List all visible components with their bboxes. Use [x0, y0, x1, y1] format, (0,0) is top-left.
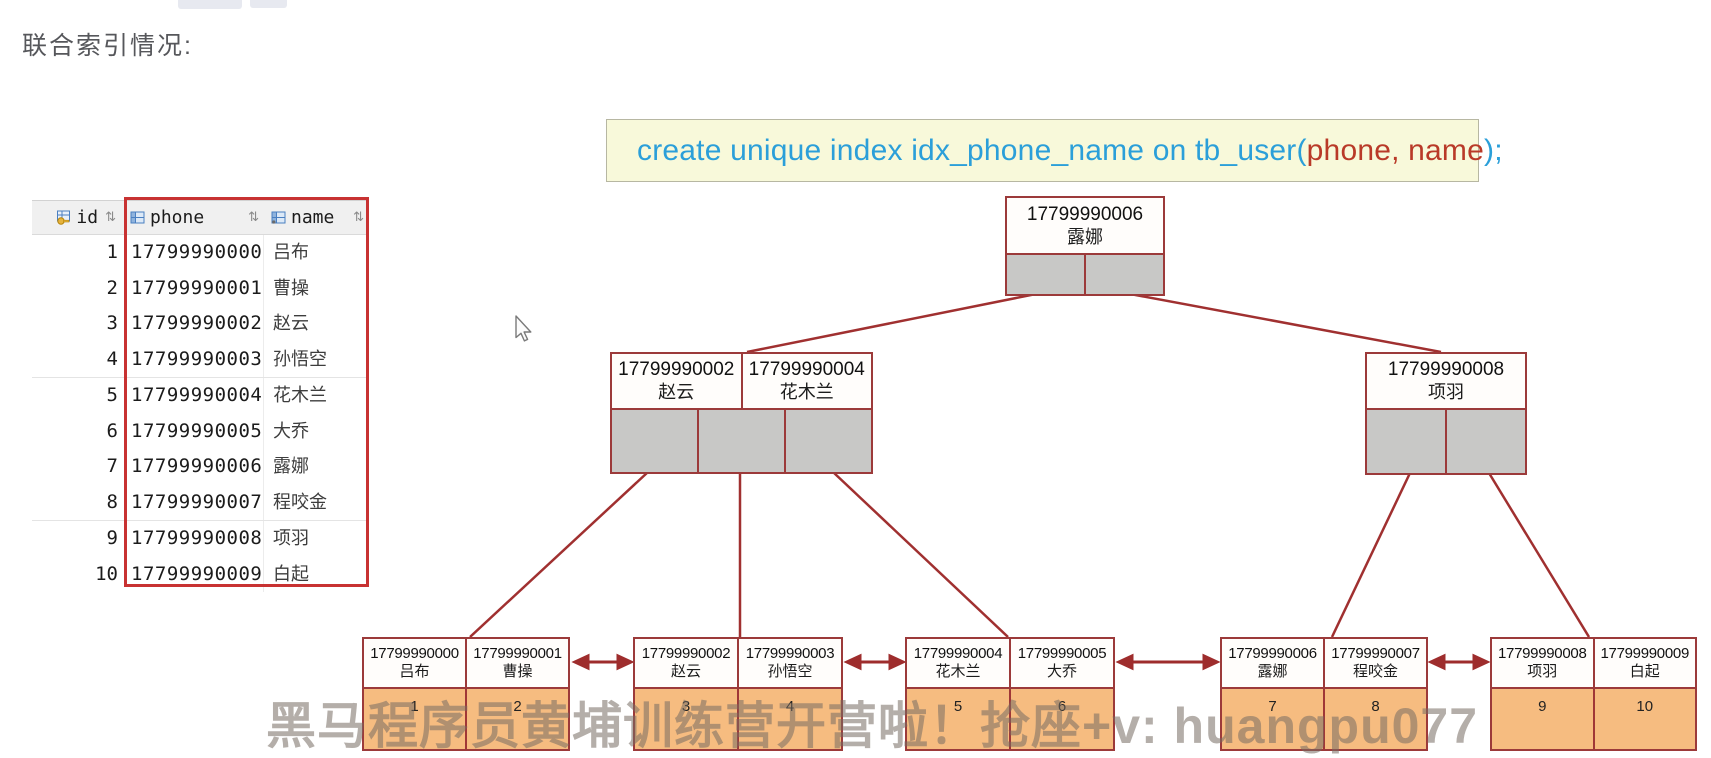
index-columns-highlight-box	[124, 197, 369, 587]
sql-text-columns: phone, name	[1307, 134, 1484, 167]
leaf-phone: 17799990007	[1325, 645, 1426, 664]
sql-text-keyword: create unique index idx_phone_name on tb…	[637, 134, 1307, 167]
leaf-phone: 17799990001	[467, 645, 568, 664]
leaf-name: 程咬金	[1325, 663, 1426, 681]
cell-id: 6	[32, 414, 126, 450]
node-key-name: 露娜	[1007, 227, 1163, 249]
leaf-name: 曹操	[467, 663, 568, 681]
page-title: 联合索引情况:	[22, 26, 193, 62]
btree-root-node: 17799990006 露娜	[1005, 196, 1165, 296]
root-pointer-row	[1007, 253, 1163, 294]
cell-id: 10	[32, 557, 126, 593]
node-key-phone: 17799990008	[1367, 358, 1525, 382]
leaf-phone: 17799990000	[364, 645, 465, 664]
node-key-name: 赵云	[612, 382, 741, 404]
cell-id: 3	[32, 306, 126, 342]
pointer-cell	[1084, 255, 1163, 294]
key-column-icon	[56, 210, 71, 225]
leaf-name: 花木兰	[907, 663, 1009, 681]
pointer-cell	[1445, 410, 1525, 473]
sort-toggle-icon[interactable]: ⇅	[105, 210, 120, 225]
leaf-name: 白起	[1595, 663, 1696, 681]
node-key-phone: 17799990006	[1007, 203, 1163, 227]
internal-pointer-row	[612, 408, 871, 472]
cell-id: 9	[32, 521, 126, 557]
node-key-phone: 17799990002	[612, 358, 741, 382]
column-header-id[interactable]: id ⇅	[32, 207, 126, 228]
pointer-cell	[697, 410, 784, 472]
leaf-phone: 17799990009	[1595, 645, 1696, 664]
cell-id: 7	[32, 449, 126, 485]
cell-id: 5	[32, 378, 126, 414]
node-key-phone: 17799990004	[743, 358, 872, 382]
node-key-name: 花木兰	[743, 382, 872, 404]
cell-id: 4	[32, 342, 126, 378]
leaf-row-id: 9	[1492, 689, 1593, 749]
top-edge-artifact	[178, 0, 242, 9]
leaf-name: 露娜	[1222, 663, 1323, 681]
btree-leaf-node-5: 17799990008项羽 17799990009白起 9 10	[1490, 637, 1697, 751]
leaf-name: 大乔	[1011, 663, 1113, 681]
leaf-name: 孙悟空	[739, 663, 841, 681]
leaf-phone: 17799990008	[1492, 645, 1593, 664]
cell-id: 8	[32, 485, 126, 521]
top-edge-artifact	[250, 0, 287, 8]
leaf-name: 赵云	[635, 663, 737, 681]
leaf-phone: 17799990003	[739, 645, 841, 664]
btree-internal-node-right: 17799990008 项羽	[1365, 352, 1527, 475]
cell-id: 2	[32, 271, 126, 307]
leaf-phone: 17799990004	[907, 645, 1009, 664]
pointer-cell	[1007, 255, 1084, 294]
watermark-text: 黑马程序员黄埔训练营开营啦！抢座+v: huangpu077	[266, 686, 1478, 758]
node-key-name: 项羽	[1367, 382, 1525, 404]
pointer-cell	[784, 410, 871, 472]
sql-text-close: );	[1484, 134, 1503, 167]
btree-internal-node-left: 17799990002 赵云 17799990004 花木兰	[610, 352, 873, 474]
leaf-name: 吕布	[364, 663, 465, 681]
pointer-cell	[612, 410, 697, 472]
leaf-phone: 17799990005	[1011, 645, 1113, 664]
leaf-name: 项羽	[1492, 663, 1593, 681]
internal-pointer-row	[1367, 408, 1525, 473]
slide-canvas: { "title": "联合索引情况:", "sql": { "blue_pre…	[0, 0, 1711, 732]
leaf-phone: 17799990002	[635, 645, 737, 664]
leaf-phone: 17799990006	[1222, 645, 1323, 664]
column-label-id: id	[76, 207, 98, 228]
cell-id: 1	[32, 235, 126, 271]
sql-statement-box: create unique index idx_phone_name on tb…	[606, 119, 1479, 182]
leaf-row-id: 10	[1593, 689, 1696, 749]
pointer-cell	[1367, 410, 1445, 473]
